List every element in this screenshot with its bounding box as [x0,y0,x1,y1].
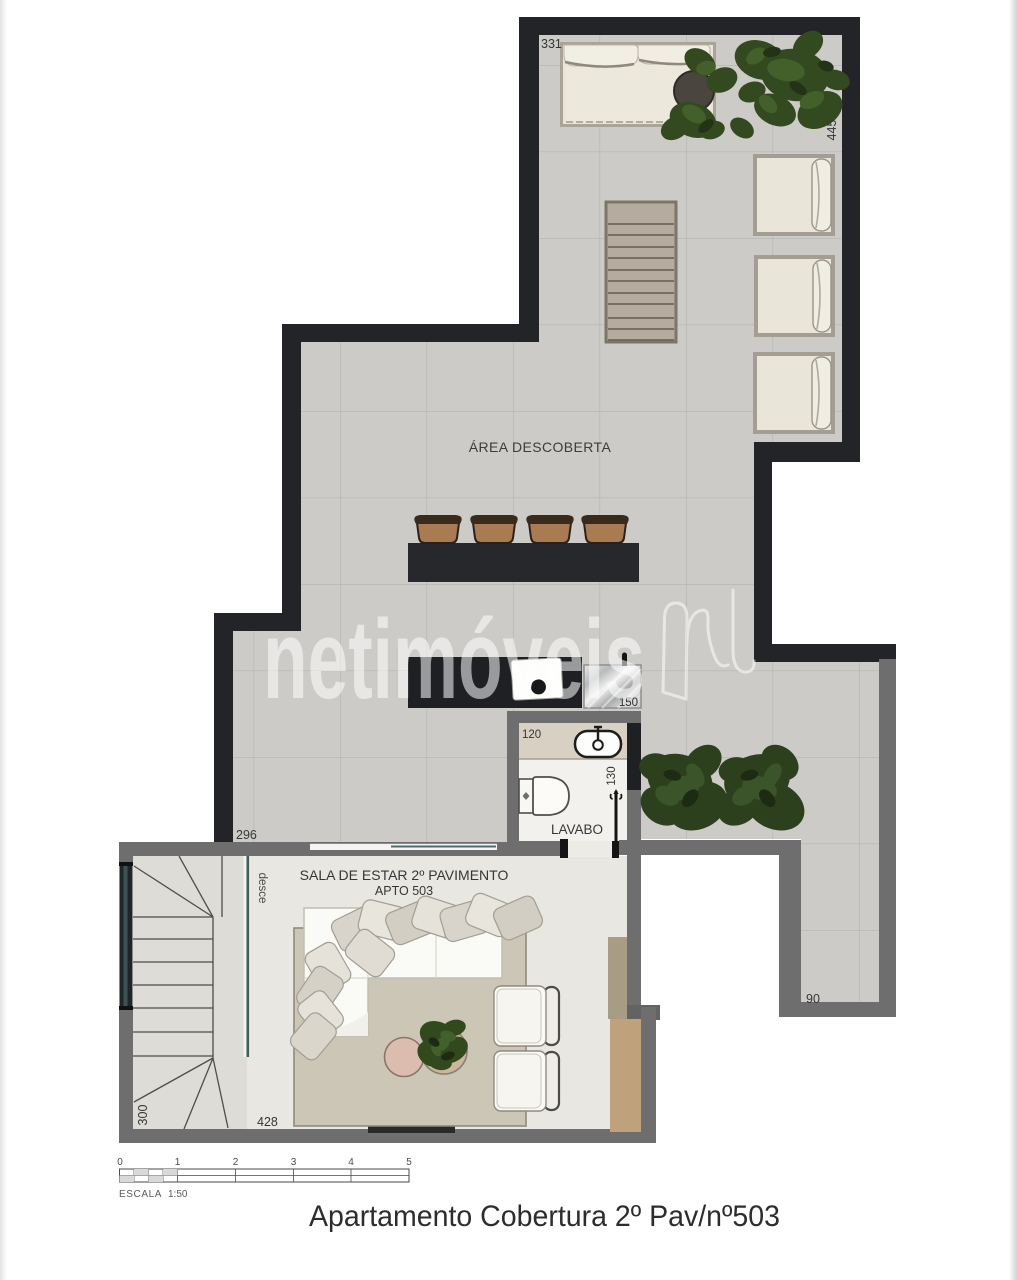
svg-text:5: 5 [406,1157,412,1168]
svg-text:desce: desce [256,873,268,904]
svg-text:APTO 503: APTO 503 [375,884,433,898]
svg-text:90: 90 [806,992,820,1006]
svg-text:428: 428 [257,1115,278,1129]
svg-text:1:50: 1:50 [168,1189,188,1200]
svg-text:ÁREA DESCOBERTA: ÁREA DESCOBERTA [469,439,612,455]
svg-text:Apartamento Cobertura 2º Pav/n: Apartamento Cobertura 2º Pav/nº503 [309,1200,780,1233]
svg-text:LAVABO: LAVABO [551,822,603,837]
svg-text:netimóveis: netimóveis [263,597,645,722]
svg-text:331: 331 [541,37,562,51]
svg-text:2: 2 [233,1157,239,1168]
svg-text:1: 1 [175,1157,181,1168]
svg-text:SALA DE ESTAR 2º PAVIMENTO: SALA DE ESTAR 2º PAVIMENTO [300,867,509,883]
svg-text:120: 120 [522,729,541,741]
svg-text:4: 4 [348,1157,354,1168]
svg-text:296: 296 [236,828,257,842]
svg-text:130: 130 [606,766,618,785]
svg-text:3: 3 [291,1157,297,1168]
svg-text:0: 0 [117,1157,123,1168]
svg-text:445: 445 [825,120,839,141]
svg-text:300: 300 [136,1105,150,1126]
svg-text:ESCALA: ESCALA [119,1189,162,1200]
